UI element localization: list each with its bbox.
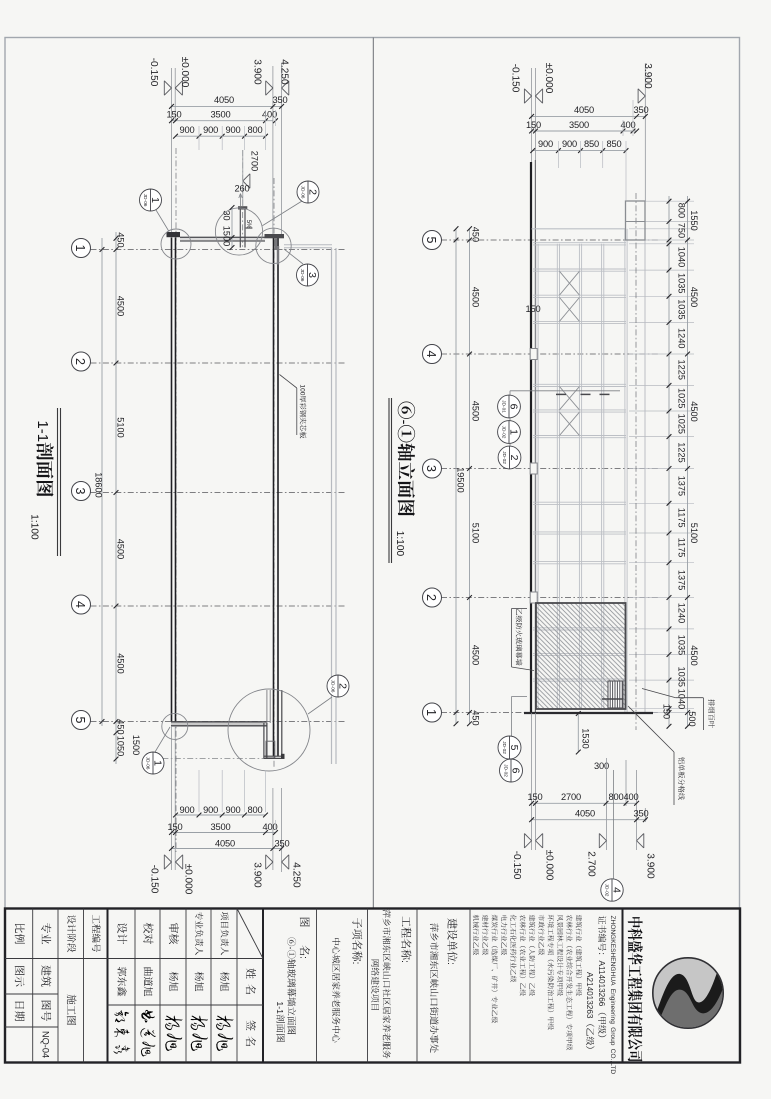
svg-text:Engineering: Engineering (609, 989, 616, 1025)
svg-text:900: 900 (226, 805, 241, 815)
svg-text:-0.150: -0.150 (148, 58, 159, 87)
svg-text:1375: 1375 (677, 570, 687, 590)
svg-text:Group: Group (609, 1027, 616, 1046)
svg-text:±0.000: ±0.000 (179, 57, 190, 88)
svg-text:1035: 1035 (677, 667, 687, 687)
svg-text:1: 1 (152, 760, 164, 766)
svg-text:3500: 3500 (211, 110, 231, 120)
svg-text:900: 900 (562, 139, 577, 149)
svg-text::: : (350, 962, 361, 965)
svg-text:JD-02: JD-02 (604, 884, 610, 897)
svg-text:JD-01: JD-01 (501, 400, 507, 413)
svg-text:150: 150 (168, 822, 183, 832)
svg-text:1175: 1175 (677, 508, 687, 528)
svg-text:4500: 4500 (116, 653, 126, 673)
svg-text:1175: 1175 (677, 538, 687, 558)
svg-text:4500: 4500 (689, 401, 699, 421)
svg-text:4050: 4050 (214, 95, 234, 105)
svg-text:4050: 4050 (574, 105, 594, 115)
svg-text:900: 900 (203, 125, 218, 135)
svg-text:800: 800 (609, 792, 624, 802)
svg-text:±0.000: ±0.000 (544, 850, 555, 881)
svg-text:4500: 4500 (471, 645, 481, 665)
svg-text:3: 3 (424, 465, 438, 472)
svg-text:ZHONGKESHENGHUA: ZHONGKESHENGHUA (609, 916, 616, 987)
svg-text:1035: 1035 (677, 299, 687, 319)
svg-text:-0.150: -0.150 (511, 851, 522, 880)
svg-text:1035: 1035 (677, 273, 687, 293)
svg-text:4500: 4500 (689, 287, 699, 307)
svg-text:2: 2 (337, 683, 349, 689)
svg-text:400: 400 (624, 792, 639, 802)
svg-text:6: 6 (508, 404, 520, 410)
svg-text:A114013266: A114013266 (597, 961, 606, 1007)
svg-text:450: 450 (116, 719, 126, 734)
svg-text:850: 850 (584, 139, 599, 149)
svg-text:19500: 19500 (456, 467, 466, 493)
svg-text:1500: 1500 (131, 735, 141, 755)
svg-text:3500: 3500 (211, 822, 231, 832)
svg-text:1035: 1035 (677, 635, 687, 655)
svg-text:2: 2 (73, 358, 87, 365)
svg-text:1550: 1550 (689, 210, 699, 230)
svg-text:JD-02: JD-02 (501, 741, 507, 754)
svg-text:900: 900 (203, 805, 218, 815)
svg-text:4: 4 (611, 887, 623, 893)
svg-text:±0.000: ±0.000 (183, 864, 194, 895)
svg-text:800: 800 (248, 805, 263, 815)
svg-text:NQ-04: NQ-04 (40, 1031, 50, 1058)
svg-text:3.900: 3.900 (252, 59, 263, 85)
svg-text:4500: 4500 (689, 645, 699, 665)
svg-text:750: 750 (677, 223, 687, 238)
svg-text:4: 4 (424, 351, 438, 358)
svg-text:260: 260 (235, 184, 250, 194)
svg-text:JD-02: JD-02 (501, 426, 507, 439)
svg-text:1375: 1375 (677, 476, 687, 496)
svg-text:30: 30 (222, 210, 232, 220)
svg-text:3.900: 3.900 (645, 853, 656, 879)
svg-text:18600: 18600 (94, 472, 104, 498)
svg-text:900: 900 (538, 139, 553, 149)
svg-text:1240: 1240 (677, 328, 687, 348)
svg-text:900: 900 (226, 125, 241, 135)
svg-text:1240: 1240 (677, 603, 687, 623)
svg-text:150: 150 (167, 110, 182, 120)
svg-text:5100: 5100 (689, 523, 699, 543)
svg-text:5100: 5100 (471, 523, 481, 543)
svg-text:2: 2 (424, 594, 438, 601)
svg-text:5: 5 (508, 745, 520, 751)
svg-text:6: 6 (510, 768, 522, 774)
svg-text:4050: 4050 (215, 839, 235, 849)
svg-text:150: 150 (526, 304, 541, 314)
svg-text:350: 350 (273, 95, 288, 105)
svg-text:5: 5 (73, 717, 87, 724)
svg-text:850: 850 (607, 139, 622, 149)
svg-text:CO.,LTD: CO.,LTD (609, 1049, 616, 1075)
svg-text:2: 2 (508, 455, 520, 461)
svg-text:JD-06: JD-06 (145, 757, 151, 770)
svg-text:1225: 1225 (677, 360, 687, 380)
svg-text:450: 450 (471, 710, 481, 725)
svg-text::: : (298, 956, 309, 959)
svg-text:3.900: 3.900 (642, 63, 653, 89)
svg-text:5100: 5100 (116, 417, 126, 437)
svg-text:-0.150: -0.150 (149, 865, 160, 894)
svg-text:JD-06: JD-06 (299, 269, 305, 282)
svg-text:150: 150 (526, 120, 541, 130)
svg-text:1040: 1040 (677, 247, 687, 267)
svg-text:4.250: 4.250 (291, 862, 302, 888)
svg-text:A214013263: A214013263 (585, 972, 594, 1019)
svg-text:350: 350 (634, 105, 649, 115)
svg-text:900: 900 (180, 125, 195, 135)
svg-text:4500: 4500 (116, 296, 126, 316)
svg-text:1-1: 1-1 (34, 420, 51, 442)
svg-text:350: 350 (275, 839, 290, 849)
svg-text:4500: 4500 (116, 539, 126, 559)
svg-text:2700: 2700 (250, 151, 260, 171)
svg-text:800: 800 (677, 203, 687, 218)
svg-text::: : (445, 962, 456, 965)
svg-text:450: 450 (116, 232, 126, 247)
svg-text:150: 150 (662, 704, 672, 719)
svg-text:-: - (395, 420, 412, 425)
svg-text:JD-06: JD-06 (300, 186, 306, 199)
svg-text:1: 1 (508, 429, 520, 435)
svg-text:1: 1 (73, 245, 87, 252)
svg-text:1025: 1025 (677, 388, 687, 408)
svg-text:5: 5 (424, 237, 438, 244)
svg-text:450: 450 (471, 227, 481, 242)
svg-text:JD-02: JD-02 (501, 451, 507, 464)
svg-text:500: 500 (687, 711, 697, 726)
svg-text:1:100: 1:100 (29, 514, 40, 540)
svg-text:4500: 4500 (471, 401, 481, 421)
svg-text:1040: 1040 (677, 689, 687, 709)
svg-text:1: 1 (424, 709, 438, 716)
svg-text:2.700: 2.700 (586, 851, 597, 877)
svg-text::: : (399, 960, 410, 963)
svg-text:JD-06: JD-06 (330, 680, 336, 693)
svg-text:4500: 4500 (471, 287, 481, 307)
svg-text:±0.000: ±0.000 (543, 63, 554, 94)
svg-text:3500: 3500 (569, 120, 589, 130)
svg-text:3: 3 (73, 488, 87, 495)
svg-text:150: 150 (528, 792, 543, 802)
svg-text:1: 1 (149, 197, 161, 203)
svg-text:1025: 1025 (677, 414, 687, 434)
svg-text:350: 350 (634, 809, 649, 819)
svg-text:4050: 4050 (575, 809, 595, 819)
svg-text:1-1: 1-1 (275, 1001, 285, 1014)
svg-text:1530: 1530 (581, 728, 591, 748)
svg-text:JD-02: JD-02 (503, 764, 509, 777)
svg-text:2700: 2700 (561, 792, 581, 802)
svg-text:JD-06: JD-06 (142, 194, 148, 207)
svg-text:4.250: 4.250 (279, 59, 290, 85)
svg-text:900: 900 (180, 805, 195, 815)
svg-text:-: - (286, 947, 296, 950)
svg-text:100: 100 (298, 384, 305, 395)
svg-text:800: 800 (248, 125, 263, 135)
svg-text:1:100: 1:100 (394, 531, 405, 557)
svg-text:4: 4 (73, 601, 87, 608)
svg-text:2: 2 (307, 189, 319, 195)
svg-text:1050: 1050 (116, 736, 126, 756)
svg-text:1225: 1225 (677, 442, 687, 462)
svg-text:-0.150: -0.150 (510, 64, 521, 93)
svg-text:3.900: 3.900 (252, 862, 263, 888)
svg-text:400: 400 (262, 110, 277, 120)
svg-text:1500: 1500 (222, 226, 232, 246)
svg-text:3: 3 (306, 272, 318, 278)
